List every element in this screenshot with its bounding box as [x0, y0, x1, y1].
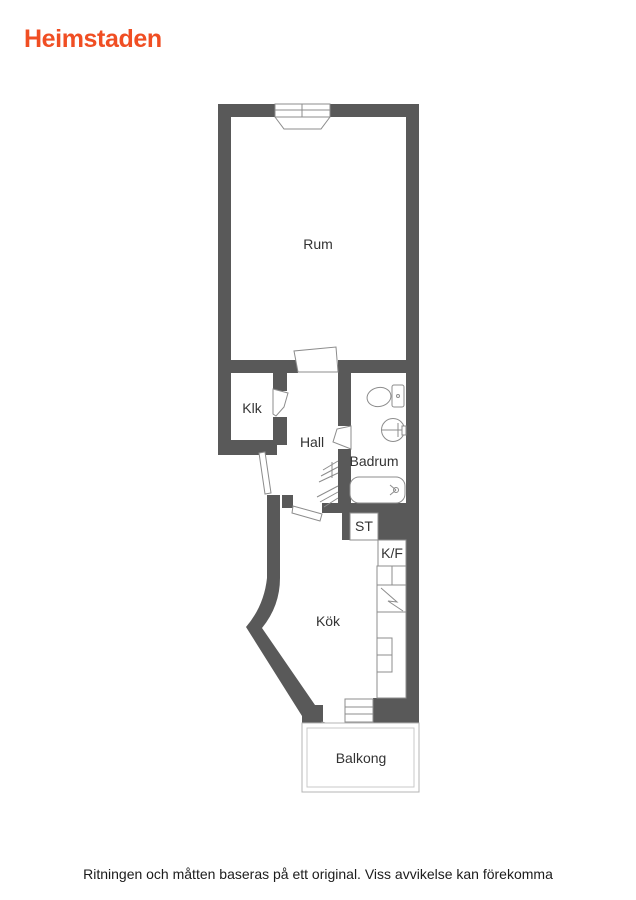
wall-st-left [342, 513, 350, 540]
kitchen-counter [377, 566, 406, 698]
wall-st-right [378, 513, 419, 540]
balcony-window [345, 699, 373, 722]
toilet-icon [365, 385, 404, 409]
klk-door [273, 389, 288, 416]
room-label-st: ST [355, 518, 373, 534]
room-label-badrum: Badrum [349, 453, 398, 469]
room-label-kf: K/F [381, 545, 403, 561]
hall-kok-door [292, 506, 322, 521]
room-label-rum: Rum [303, 236, 333, 252]
wall-left-outer [218, 104, 231, 455]
bathtub-icon [350, 477, 405, 503]
rum-door [294, 347, 338, 372]
entrance-door [259, 452, 271, 494]
wall-top-right [330, 104, 419, 117]
wall-rum-bottom-left [218, 360, 298, 373]
wall-badrum-bottom [322, 503, 419, 513]
wardrobe-hatch [317, 461, 338, 507]
rum-window [275, 104, 330, 129]
wall-hall-badrum-upper [338, 373, 351, 426]
wall-rum-bottom-right [338, 360, 419, 373]
wall-klk-right-upper [273, 373, 287, 391]
floorplan: Rum Klk Hall Badrum ST K/F Kök Balkong [0, 0, 636, 900]
wall-right-outer [406, 104, 419, 700]
badrum-door [333, 426, 351, 449]
wall-klk-bottom [218, 440, 277, 455]
room-label-balkong: Balkong [336, 750, 387, 766]
disclaimer-text: Ritningen och måtten baseras på ett orig… [0, 866, 636, 882]
sink-icon [382, 419, 407, 442]
wall-hall-kok-stub [282, 495, 293, 508]
room-label-hall: Hall [300, 434, 324, 450]
room-label-kok: Kök [316, 613, 341, 629]
room-label-klk: Klk [242, 400, 262, 416]
wall-kok-bottom-right [373, 698, 419, 723]
wall-kok-left-curved [246, 495, 323, 723]
